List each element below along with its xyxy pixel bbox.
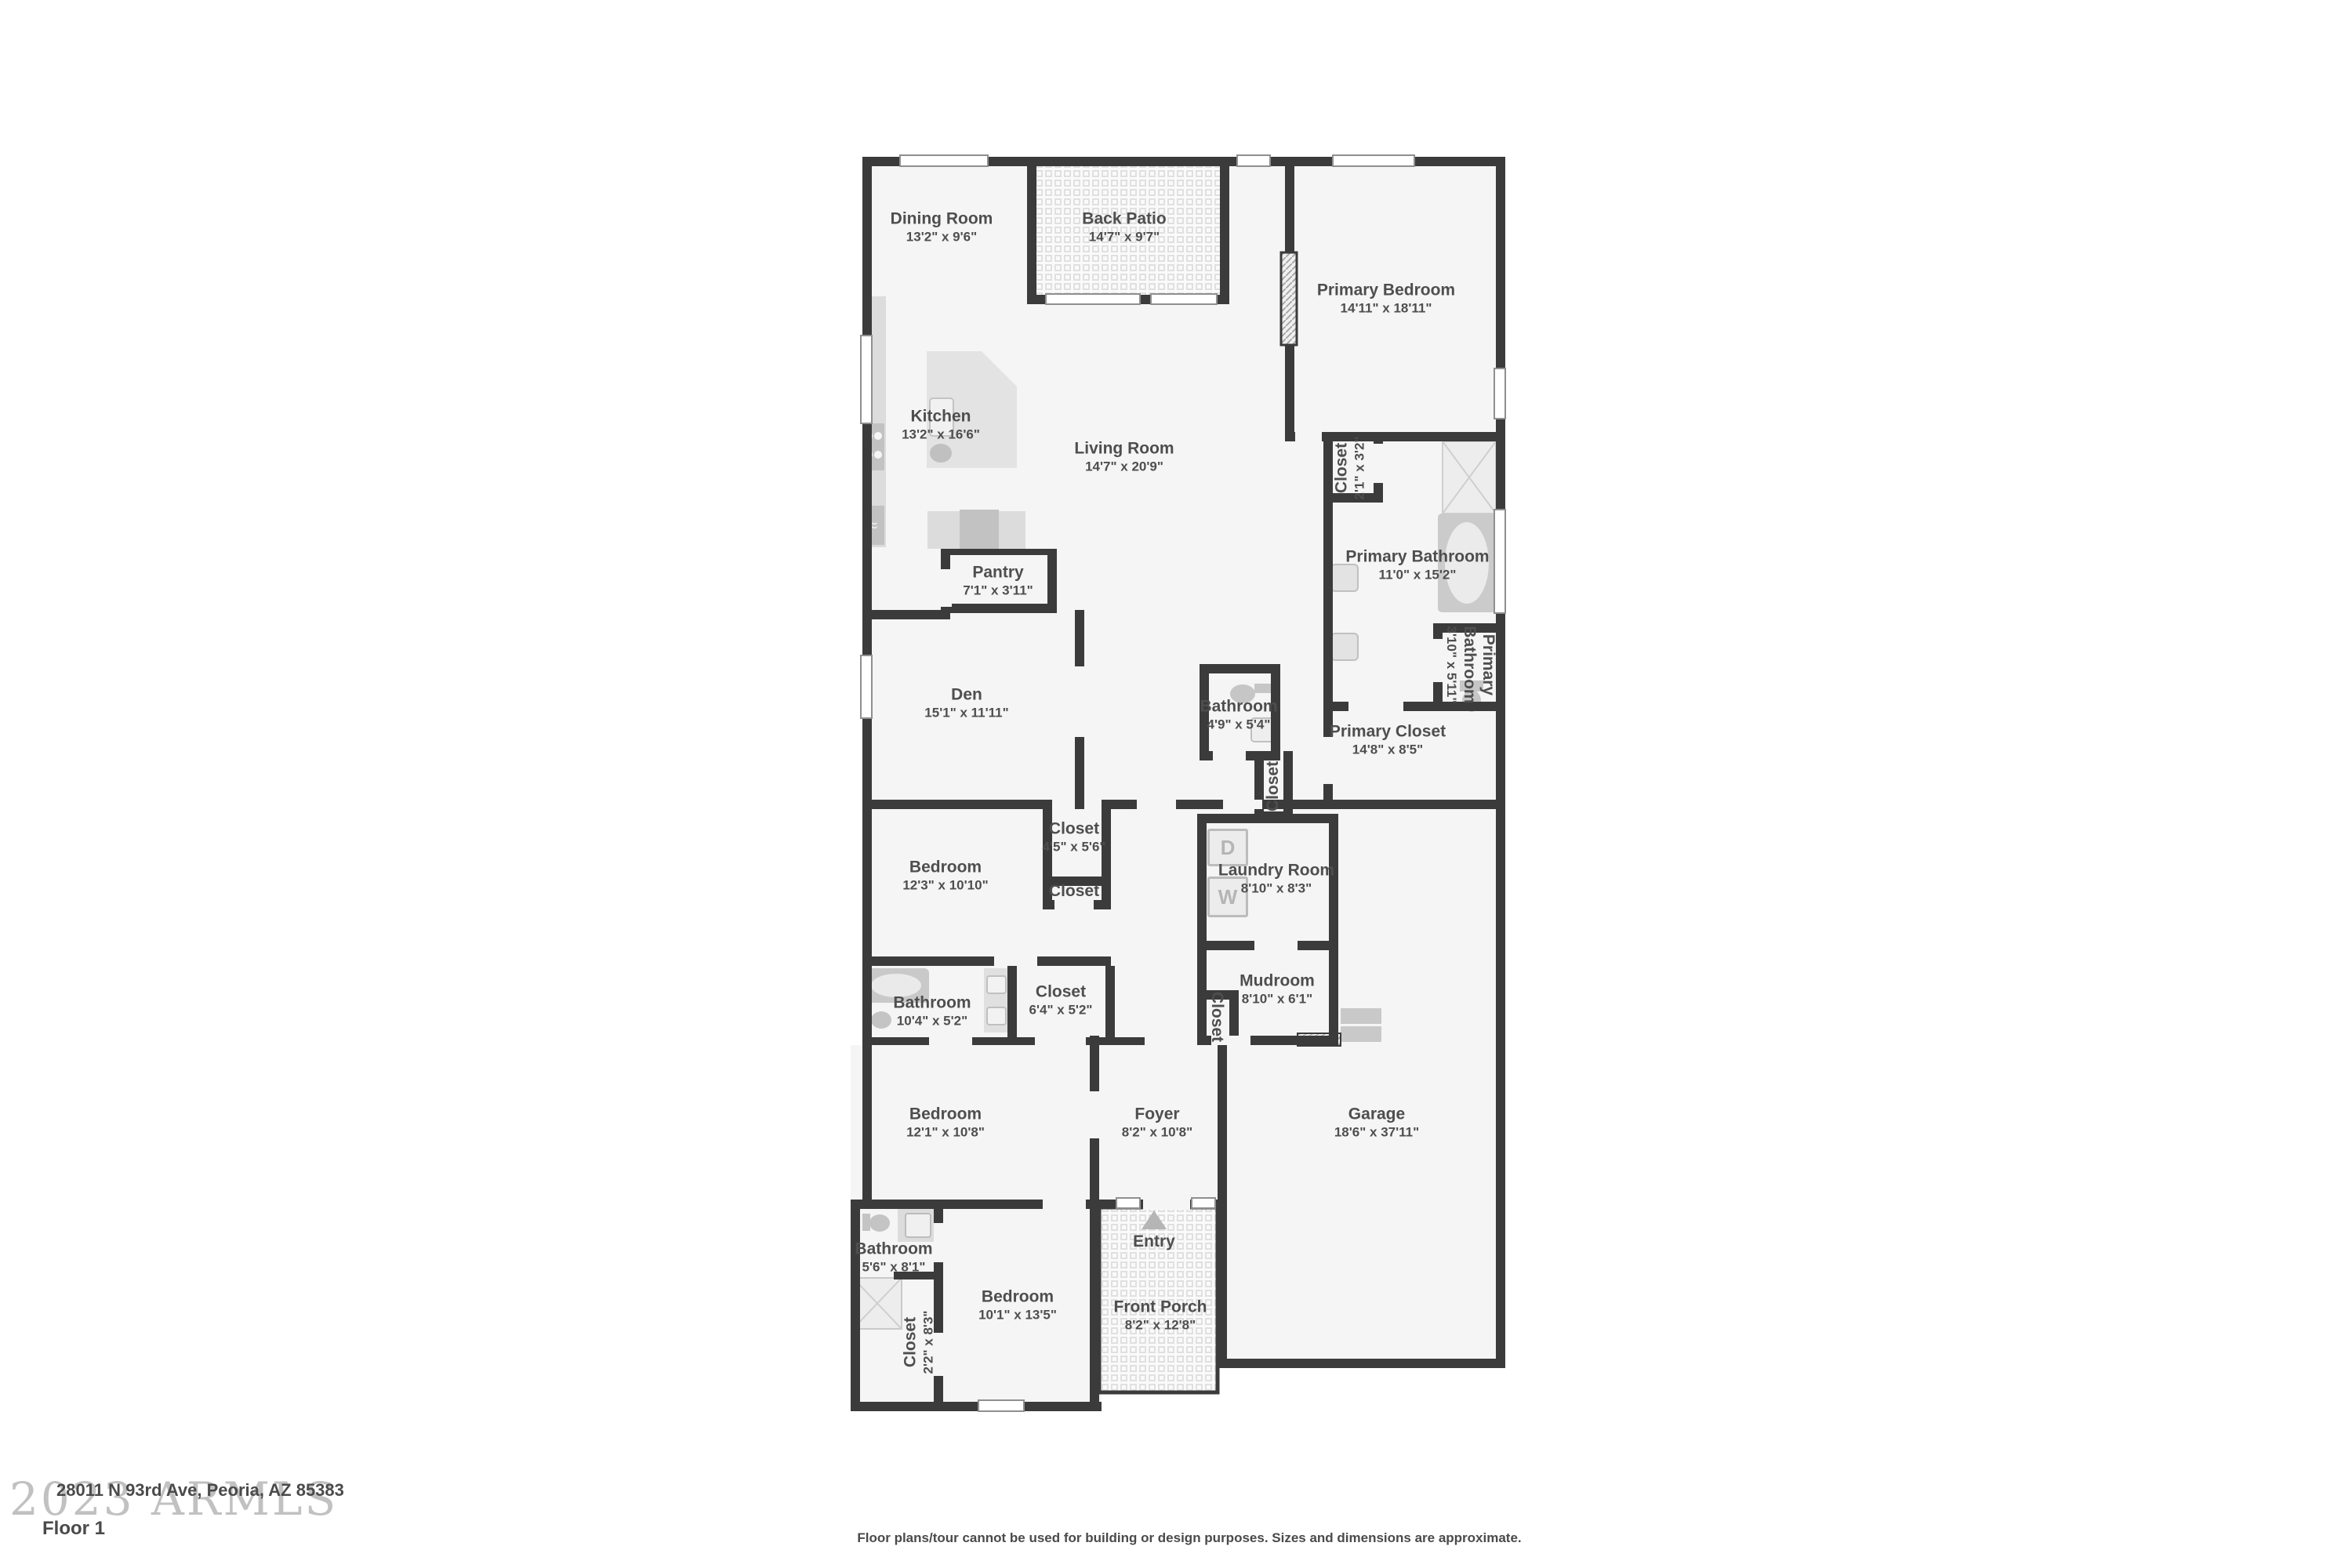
sidelight-window-icon [1116, 1198, 1140, 1208]
window-icon [978, 1400, 1024, 1411]
room-label-closet-22: Closet 2'2" x 8'3" [901, 1311, 936, 1374]
window-icon [1494, 510, 1505, 613]
door-gap [1494, 368, 1505, 419]
room-label-bedroom2: Bedroom 12'3" x 10'10" [902, 858, 988, 893]
room-label-bathroom-104: Bathroom 10'4" x 5'2" [893, 993, 971, 1029]
room-label-closet-primary: Closet 2'1" x 3'2" [1332, 437, 1367, 500]
room-label-bathroom-56: Bathroom 5'6" x 8'1" [855, 1240, 932, 1275]
room-label-pantry: Pantry 7'1" x 3'11" [963, 563, 1033, 598]
room-label-laundry-room: Laundry Room 8'10" x 8'3" [1218, 861, 1334, 896]
room-label-hall-bathroom: Bathroom 4'9" x 5'4" [1200, 697, 1277, 732]
window-icon [861, 336, 872, 423]
room-label-bedroom2-closet: Closet 4'5" x 5'6" [1043, 819, 1106, 855]
window-icon [1237, 155, 1270, 166]
sidelight-window-icon [1192, 1198, 1215, 1208]
room-label-primary-closet: Primary Closet 14'8" x 8'5" [1330, 722, 1446, 757]
room-label-foyer: Foyer 8'2" x 10'8" [1122, 1105, 1192, 1140]
room-label-bedroom3: Bedroom 12'1" x 10'8" [906, 1105, 985, 1140]
room-label-closet-small: Closet [1049, 882, 1099, 901]
disclaimer-text: Floor plans/tour cannot be used for buil… [857, 1530, 1521, 1546]
property-address: 28011 N 93rd Ave, Peoria, AZ 85383 [56, 1480, 344, 1501]
sliding-door-icon [1281, 252, 1297, 345]
room-label-bedroom4: Bedroom 10'1" x 13'5" [978, 1287, 1057, 1323]
room-label-hall-closet: Closet [1264, 761, 1283, 811]
floor-label: Floor 1 [42, 1518, 105, 1540]
toilet-icon [862, 1214, 870, 1231]
room-label-garage: Garage 18'6" x 37'11" [1334, 1105, 1419, 1140]
room-label-mudroom: Mudroom 8'10" x 6'1" [1240, 971, 1315, 1007]
room-label-mudroom-closet: Closet [1207, 992, 1226, 1042]
range-icon [960, 510, 999, 549]
window-icon [900, 155, 988, 166]
room-label-entry: Entry [1133, 1232, 1175, 1251]
room-label-closet-64: Closet 6'4" x 5'2" [1029, 982, 1093, 1018]
room-label-back-patio: Back Patio 14'7" x 9'7" [1082, 209, 1166, 245]
floor-plan-page: ≈ [0, 0, 2352, 1568]
patio-window-icon [1046, 294, 1140, 304]
window-icon [861, 655, 872, 718]
island-appliance-icon [930, 444, 952, 463]
window-icon [1333, 155, 1414, 166]
room-label-living-room: Living Room 14'7" x 20'9" [1074, 439, 1174, 474]
room-label-primary-bathroom: Primary Bathroom 11'0" x 15'2" [1345, 547, 1489, 583]
room-label-primary-bedroom: Primary Bedroom 14'11" x 18'11" [1317, 281, 1455, 316]
room-label-dining-room: Dining Room 13'2" x 9'6" [891, 209, 993, 245]
room-label-front-porch: Front Porch 8'2" x 12'8" [1114, 1298, 1207, 1333]
room-label-den: Den 15'1" x 11'11" [924, 685, 1008, 720]
room-label-primary-bathroom-wc: Primary Bathroom 3'10" x 5'11" [1443, 618, 1497, 712]
patio-door-icon [1151, 294, 1217, 304]
room-label-kitchen: Kitchen 13'2" x 16'6" [902, 407, 980, 442]
vanity-sink-icon [1331, 633, 1358, 660]
